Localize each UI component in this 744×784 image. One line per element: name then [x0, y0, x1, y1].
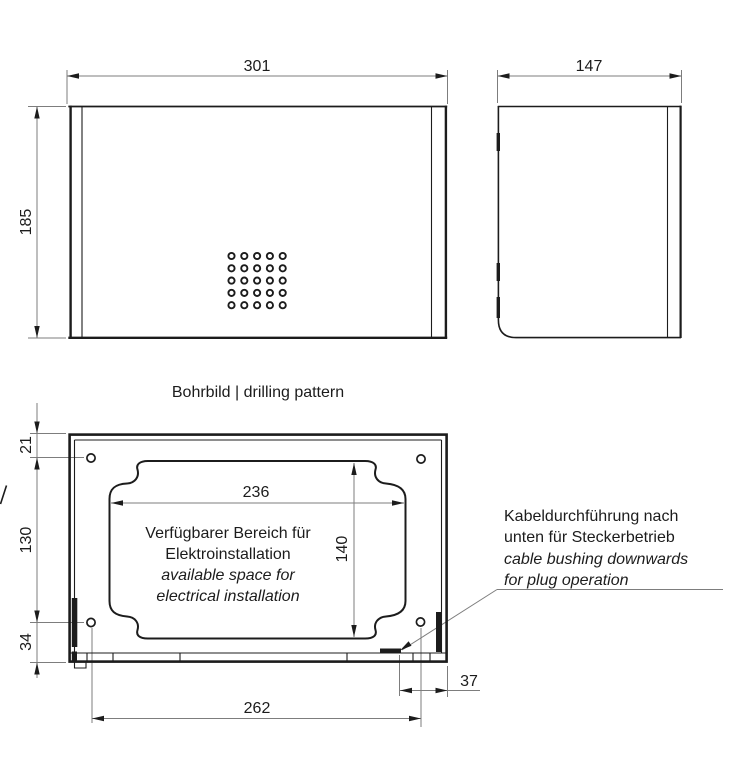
bushing-note-en-2: for plug operation: [504, 572, 629, 589]
technical-drawing-page: 301 147 185 21 130 34 236 140 262 37 Boh…: [0, 0, 744, 784]
drill-hole-top-right: [417, 455, 425, 463]
cable-bushing-note: Kabeldurchführung nach unten für Stecker…: [504, 508, 688, 589]
available-space-en-1: available space for: [161, 567, 295, 584]
available-space-de-2: Elektroinstallation: [165, 546, 290, 563]
dim-front-width: 301: [244, 58, 271, 75]
available-space-en-2: electrical installation: [156, 588, 299, 605]
dim-hole-vertical-spacing: 130: [18, 527, 35, 554]
dim-side-depth: 147: [576, 58, 603, 75]
clipped-edge-mark: [1, 486, 7, 505]
dim-space-width: 236: [243, 484, 270, 501]
perforation-grid: [228, 253, 285, 308]
left-bushing-bar-lower: [72, 652, 77, 663]
bushing-note-en-1: cable bushing downwards: [504, 551, 688, 568]
front-view: [68, 106, 447, 338]
mounting-tab: [497, 263, 500, 281]
dimension-arrows: [34, 73, 681, 721]
dim-hole-horizontal-spacing: 262: [244, 700, 271, 717]
mounting-tab: [497, 297, 500, 318]
right-bushing-bar: [436, 612, 441, 652]
drill-hole-bottom-left: [87, 618, 95, 626]
left-bushing-bar: [72, 598, 78, 647]
dim-hole-bottom-offset: 34: [18, 633, 35, 651]
dim-front-height: 185: [18, 209, 35, 236]
bottom-cable-bushing: [380, 649, 401, 654]
drill-hole-bottom-right: [416, 618, 424, 626]
mounting-tab: [497, 133, 500, 151]
drawing-svg: 301 147 185 21 130 34 236 140 262 37 Boh…: [0, 0, 744, 784]
available-space-label: Verfügbarer Bereich für Elektroinstallat…: [145, 525, 311, 605]
dim-hole-top-offset: 21: [18, 436, 35, 454]
side-view: [497, 106, 681, 338]
drilling-pattern-title: Bohrbild | drilling pattern: [172, 384, 344, 401]
dim-space-height: 140: [334, 536, 351, 563]
dim-bushing-offset: 37: [460, 673, 478, 690]
available-space-de-1: Verfügbarer Bereich für: [145, 525, 311, 542]
drill-hole-top-left: [87, 454, 95, 462]
bushing-note-de-2: unten für Steckerbetrieb: [504, 529, 675, 546]
bushing-note-de-1: Kabeldurchführung nach: [504, 508, 678, 525]
